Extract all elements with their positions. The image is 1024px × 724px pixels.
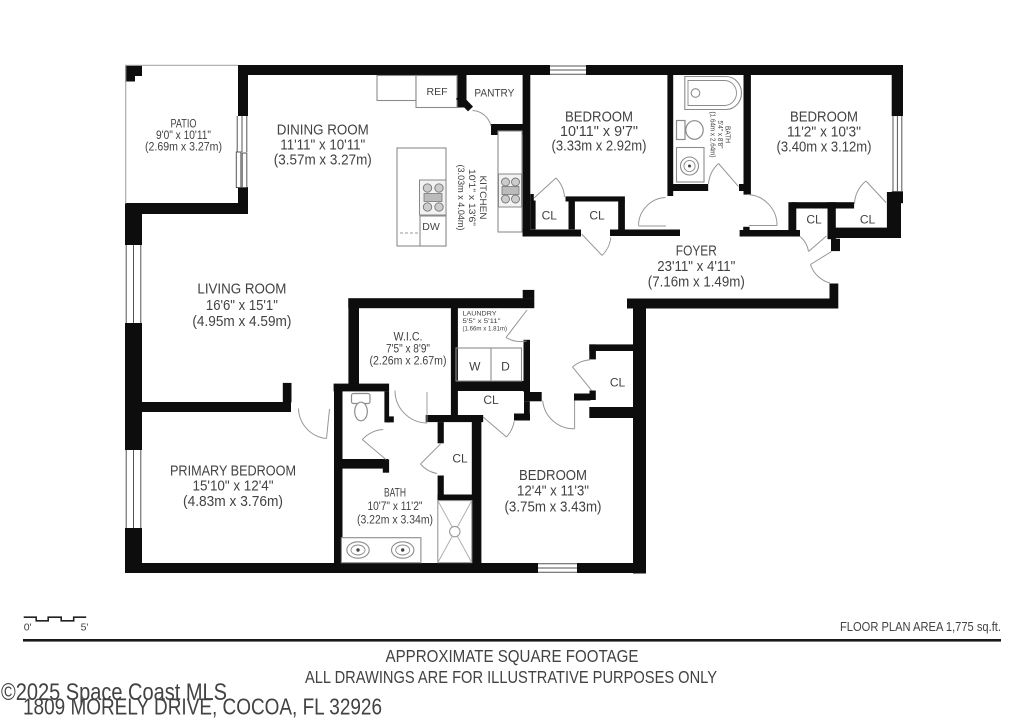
svg-text:PRIMARY BEDROOM: PRIMARY BEDROOM (170, 464, 296, 480)
svg-text:5'4" x 8'8": 5'4" x 8'8" (716, 121, 723, 149)
svg-text:BATH: BATH (724, 126, 731, 143)
svg-text:PANTRY: PANTRY (474, 88, 515, 100)
svg-text:APPROXIMATE SQUARE FOOTAGE: APPROXIMATE SQUARE FOOTAGE (386, 646, 639, 666)
svg-text:11'2" x 10'3": 11'2" x 10'3" (787, 125, 861, 141)
svg-text:KITCHEN: KITCHEN (477, 176, 488, 220)
svg-text:CL: CL (483, 393, 499, 407)
svg-text:(7.16m x 1.49m): (7.16m x 1.49m) (648, 275, 745, 291)
svg-text:FLOOR PLAN AREA 1,775 sq.ft.: FLOOR PLAN AREA 1,775 sq.ft. (840, 620, 1001, 634)
svg-text:11'11" x 10'11": 11'11" x 10'11" (280, 138, 365, 154)
svg-text:12'4" x 11'3": 12'4" x 11'3" (517, 484, 589, 500)
svg-text:LAUNDRY: LAUNDRY (463, 311, 497, 318)
svg-text:D: D (501, 359, 510, 373)
svg-text:LIVING ROOM: LIVING ROOM (197, 282, 286, 298)
svg-text:CL: CL (589, 208, 605, 222)
svg-text:1809 MORELY DRIVE, COCOA, FL 3: 1809 MORELY DRIVE, COCOA, FL 32926 (23, 694, 382, 720)
svg-text:(3.40m x 3.12m): (3.40m x 3.12m) (777, 140, 872, 156)
svg-text:REF: REF (427, 86, 448, 98)
svg-text:15'10" x 12'4": 15'10" x 12'4" (193, 479, 274, 495)
svg-text:(2.26m x 2.67m): (2.26m x 2.67m) (370, 354, 447, 368)
svg-text:CL: CL (806, 213, 822, 227)
svg-text:10'1" x 13'6": 10'1" x 13'6" (466, 169, 477, 226)
svg-text:CL: CL (860, 213, 876, 227)
svg-text:(3.33m x 2.92m): (3.33m x 2.92m) (552, 139, 647, 155)
svg-text:16'6" x 15'1": 16'6" x 15'1" (206, 298, 278, 314)
svg-text:CL: CL (452, 452, 468, 466)
svg-text:5': 5' (81, 622, 89, 634)
svg-text:BATH: BATH (384, 486, 406, 500)
svg-text:DW: DW (422, 221, 440, 233)
svg-text:ALL DRAWINGS ARE FOR ILLUSTRAT: ALL DRAWINGS ARE FOR ILLUSTRATIVE PURPOS… (305, 667, 717, 687)
svg-text:DINING ROOM: DINING ROOM (277, 123, 369, 139)
svg-text:W: W (469, 359, 481, 373)
svg-text:(3.22m x 3.34m): (3.22m x 3.34m) (357, 513, 433, 527)
svg-text:5'5" x 5'11": 5'5" x 5'11" (463, 318, 502, 325)
svg-text:(1.64m x 2.64m): (1.64m x 2.64m) (709, 112, 716, 158)
svg-text:BEDROOM: BEDROOM (790, 110, 858, 126)
svg-text:(2.69m x 3.27m): (2.69m x 3.27m) (145, 140, 222, 154)
svg-text:(1.66m x 1.81m): (1.66m x 1.81m) (463, 326, 508, 333)
svg-text:CL: CL (542, 208, 558, 222)
svg-text:(4.95m x 4.59m): (4.95m x 4.59m) (192, 314, 291, 330)
svg-text:(3.03m x 4.04m): (3.03m x 4.04m) (455, 165, 466, 231)
svg-text:23'11" x 4'11": 23'11" x 4'11" (657, 259, 735, 275)
svg-text:FOYER: FOYER (676, 244, 717, 260)
svg-text:BEDROOM: BEDROOM (519, 468, 587, 484)
svg-text:CL: CL (610, 375, 626, 389)
svg-text:0': 0' (24, 622, 32, 634)
svg-text:(3.57m x 3.27m): (3.57m x 3.27m) (274, 153, 372, 169)
svg-text:10'7" x 11'2": 10'7" x 11'2" (368, 499, 423, 513)
svg-text:(4.83m x 3.76m): (4.83m x 3.76m) (183, 494, 283, 510)
svg-text:(3.75m x 3.43m): (3.75m x 3.43m) (505, 500, 602, 516)
